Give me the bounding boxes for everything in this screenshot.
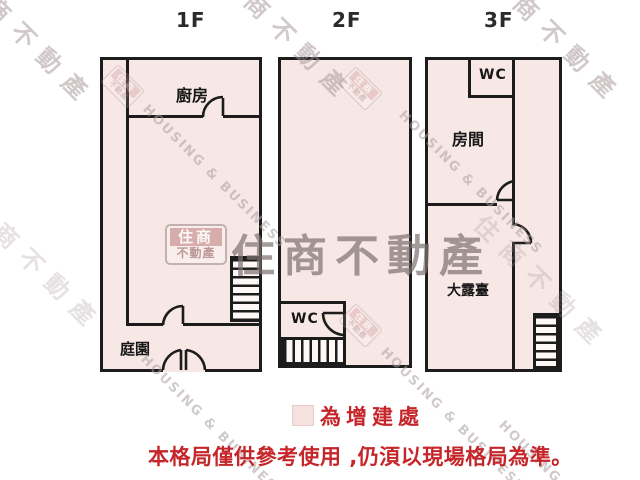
wall-3f-room-bottom bbox=[428, 203, 497, 206]
wall-1f-kitchen-left bbox=[129, 115, 203, 118]
wall-1f-main-left bbox=[129, 323, 163, 326]
watermark-brand-diagonal: 住商不動產 bbox=[0, 188, 113, 340]
wall-1f-main-right bbox=[183, 323, 259, 326]
wall-3f-wc-bottom bbox=[468, 95, 515, 98]
disclaimer-text: 本格局僅供參考使用 ,仍湏以現場格局為準。 bbox=[148, 441, 573, 471]
wall-3f-corridor bbox=[512, 60, 515, 369]
wall-3f-wc-left bbox=[468, 60, 471, 98]
staircase-3f bbox=[533, 313, 559, 369]
room-label-garden: 庭園 bbox=[120, 338, 150, 359]
room-label-bedroom: 房間 bbox=[452, 126, 484, 150]
wall-2f-wc-top bbox=[281, 301, 346, 304]
legend-addition-swatch bbox=[292, 405, 314, 426]
gap-3f-corridor-door bbox=[512, 223, 515, 243]
room-label-terrace: 大露臺 bbox=[447, 280, 489, 300]
floor-plan-image: 1F 2F 3F 廚房 庭園 WC WC 房間 大露臺 bbox=[0, 0, 640, 480]
floor-label-3f: 3F bbox=[484, 8, 514, 32]
room-label-kitchen: 廚房 bbox=[176, 82, 208, 106]
wall-1f-strip bbox=[126, 60, 129, 326]
room-label-wc-2f: WC bbox=[291, 311, 319, 327]
floor-label-2f: 2F bbox=[332, 8, 362, 32]
legend-addition-label: 為增建處 bbox=[320, 401, 424, 431]
room-label-wc-3f: WC bbox=[479, 67, 507, 83]
staircase-2f bbox=[281, 337, 346, 365]
watermark-brand-diagonal: 住商不動產 bbox=[0, 0, 105, 114]
wall-1f-kitchen-right bbox=[223, 115, 259, 118]
staircase-1f bbox=[230, 256, 262, 322]
floor-label-1f: 1F bbox=[176, 8, 206, 32]
gap-1f-garden-door bbox=[163, 369, 205, 372]
